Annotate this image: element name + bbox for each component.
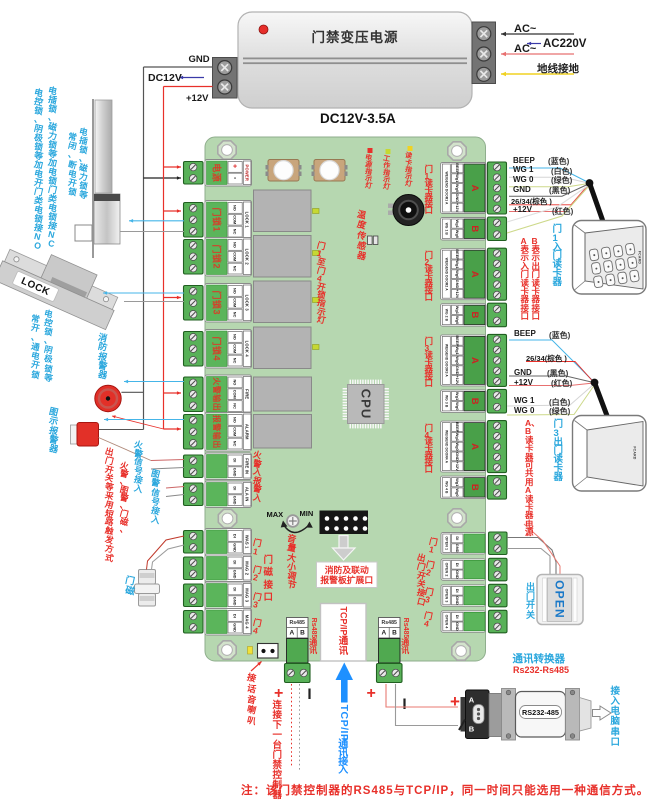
svg-text:OPEN 3: OPEN 3 (445, 589, 449, 603)
svg-text:NC: NC (233, 358, 238, 364)
svg-text:GND: GND (455, 452, 460, 461)
svg-text:A: A (469, 357, 480, 364)
svg-text:门锁4: 门锁4 (212, 336, 223, 361)
svg-text:NO: NO (233, 334, 238, 340)
svg-text:WAS 1: WAS 1 (245, 535, 250, 549)
svg-text:电源: 电源 (212, 163, 223, 182)
svg-text:+: + (233, 163, 237, 170)
svg-text:OPEN 1: OPEN 1 (445, 536, 449, 550)
svg-text:门锁3: 门锁3 (212, 290, 223, 315)
svg-text:DI: DI (233, 614, 238, 618)
svg-text:NC: NC (233, 403, 238, 409)
svg-text:Wg0: Wg0 (455, 316, 460, 324)
svg-text:BEEP: BEEP (455, 422, 460, 433)
svg-text:B: B (469, 725, 475, 734)
svg-text:ALARM: ALARM (245, 424, 250, 440)
svg-text:Wg1: Wg1 (455, 174, 460, 183)
svg-text:DI: DI (233, 486, 238, 490)
svg-text:B: B (469, 312, 480, 319)
svg-text:POWER: POWER (245, 165, 250, 181)
svg-text:COM: COM (233, 344, 238, 353)
svg-text:NO: NO (233, 379, 238, 385)
svg-text:Wg0: Wg0 (455, 230, 460, 238)
svg-text:GND: GND (233, 496, 238, 505)
svg-text:TCP/IP: TCP/IP (339, 606, 349, 635)
svg-text:MAG 3: MAG 3 (245, 588, 250, 602)
svg-text:A: A (469, 271, 480, 278)
svg-text:B: B (469, 484, 480, 491)
svg-text:LOCK 4: LOCK 4 (245, 341, 250, 358)
svg-text:A: A (469, 185, 480, 192)
svg-text:FIRE: FIRE (245, 389, 250, 399)
svg-text:TCP/IP: TCP/IP (338, 705, 350, 742)
svg-text:A: A (469, 443, 480, 450)
svg-text:BEEP: BEEP (455, 163, 460, 174)
svg-text:LOCK 2: LOCK 2 (245, 249, 250, 266)
svg-text:COM: COM (233, 390, 238, 399)
svg-text:Wg0: Wg0 (455, 184, 460, 192)
svg-text:RS232-485: RS232-485 (522, 708, 559, 717)
svg-text:B: B (469, 398, 480, 405)
svg-text:A: A (289, 630, 294, 637)
svg-text:Wg0: Wg0 (455, 402, 460, 410)
svg-text:GND: GND (455, 366, 460, 375)
svg-text:DI: DI (233, 587, 238, 591)
svg-text:GND: GND (233, 570, 238, 579)
svg-text:NO: NO (233, 288, 238, 294)
svg-text:Wg1: Wg1 (455, 433, 460, 442)
svg-text:MAG 4: MAG 4 (245, 615, 250, 629)
svg-text:门锁1: 门锁1 (212, 207, 223, 232)
svg-text:WEIGEND DOOR4 A: WEIGEND DOOR4 A (444, 430, 448, 464)
svg-text:COM: COM (233, 298, 238, 307)
svg-text:FCARD: FCARD (638, 251, 642, 265)
svg-text:Wg0: Wg0 (455, 442, 460, 450)
svg-text:B: B (469, 225, 480, 232)
svg-text:NO: NO (233, 205, 238, 211)
svg-text:Rs485: Rs485 (382, 620, 397, 626)
svg-text:Wg0: Wg0 (455, 356, 460, 364)
svg-text:COM: COM (233, 252, 238, 261)
svg-text:GND: GND (455, 193, 460, 202)
svg-text:FIRE IN: FIRE IN (245, 458, 250, 474)
svg-text:NC: NC (233, 312, 238, 318)
svg-text:A: A (469, 696, 475, 705)
svg-text:OPEN 4: OPEN 4 (445, 615, 449, 629)
svg-text:WG 1 B: WG 1 B (444, 223, 448, 236)
svg-text:COM: COM (233, 215, 238, 224)
svg-text:GND: GND (233, 597, 238, 606)
svg-text:Wg1: Wg1 (455, 260, 460, 269)
svg-text:NO: NO (233, 417, 238, 423)
svg-text:Wg1: Wg1 (455, 392, 460, 401)
svg-text:+12V: +12V (455, 289, 460, 299)
svg-text:WEIGEND DOOR1 A: WEIGEND DOOR1 A (444, 171, 448, 205)
svg-text:门锁2: 门锁2 (212, 244, 223, 269)
svg-text:Wg0: Wg0 (455, 488, 460, 496)
svg-text:NC: NC (233, 266, 238, 272)
svg-text:BEEP: BEEP (455, 249, 460, 260)
svg-text:GND: GND (455, 544, 460, 553)
svg-text:WEIGEND DOOR2 A: WEIGEND DOOR2 A (444, 258, 448, 292)
svg-text:A: A (381, 630, 386, 637)
svg-text:WG 4 B: WG 4 B (444, 481, 448, 494)
svg-text:BEEP: BEEP (455, 335, 460, 346)
svg-text:Rs485: Rs485 (402, 618, 409, 639)
svg-text:GND: GND (455, 622, 460, 631)
svg-text:Wg1: Wg1 (455, 346, 460, 355)
svg-text:GND: GND (233, 468, 238, 477)
svg-text:+12V: +12V (455, 462, 460, 472)
svg-text:+12V: +12V (455, 375, 460, 385)
svg-text:B: B (300, 630, 305, 637)
svg-text:OPEN 2: OPEN 2 (445, 563, 449, 577)
svg-text:NC: NC (233, 441, 238, 447)
svg-text:ALA IN: ALA IN (245, 487, 250, 502)
svg-text:Wg0: Wg0 (455, 270, 460, 278)
svg-text:GND: GND (233, 623, 238, 632)
svg-text:Wg1: Wg1 (455, 220, 460, 229)
svg-text:DI: DI (455, 589, 460, 593)
svg-text:COM: COM (233, 427, 238, 436)
svg-text:DI: DI (233, 534, 238, 538)
svg-text:DI: DI (233, 560, 238, 564)
svg-text:LOCK 3: LOCK 3 (245, 295, 250, 312)
svg-text:B: B (392, 630, 397, 637)
svg-text:GND: GND (233, 543, 238, 552)
svg-text:NC: NC (233, 229, 238, 235)
svg-text:OPEN: OPEN (553, 580, 567, 619)
svg-text:DI: DI (455, 615, 460, 619)
svg-text:MAG 2: MAG 2 (245, 561, 250, 575)
svg-text:DI: DI (233, 458, 238, 462)
svg-text:+12V: +12V (455, 203, 460, 213)
svg-text:FCARD: FCARD (633, 446, 637, 460)
svg-text:WG 2 B: WG 2 B (444, 309, 448, 322)
svg-text:CPU: CPU (359, 389, 374, 419)
svg-text:LOCK 1: LOCK 1 (245, 212, 250, 229)
svg-text:GND: GND (455, 570, 460, 579)
svg-text:WG 3 B: WG 3 B (444, 395, 448, 408)
svg-text:Rs485: Rs485 (310, 618, 317, 639)
svg-text:DI: DI (455, 536, 460, 540)
svg-text:DI: DI (455, 563, 460, 567)
svg-text:Wg1: Wg1 (455, 306, 460, 315)
svg-text:火警输出: 火警输出 (212, 377, 222, 411)
svg-text:报警输出: 报警输出 (212, 415, 222, 449)
svg-text:WEIGEND DOOR3 A: WEIGEND DOOR3 A (444, 344, 448, 378)
svg-text:GND: GND (455, 596, 460, 605)
svg-text:Wg1: Wg1 (455, 478, 460, 487)
svg-text:NO: NO (233, 242, 238, 248)
svg-text:Rs485: Rs485 (290, 620, 305, 626)
svg-text:GND: GND (455, 280, 460, 289)
